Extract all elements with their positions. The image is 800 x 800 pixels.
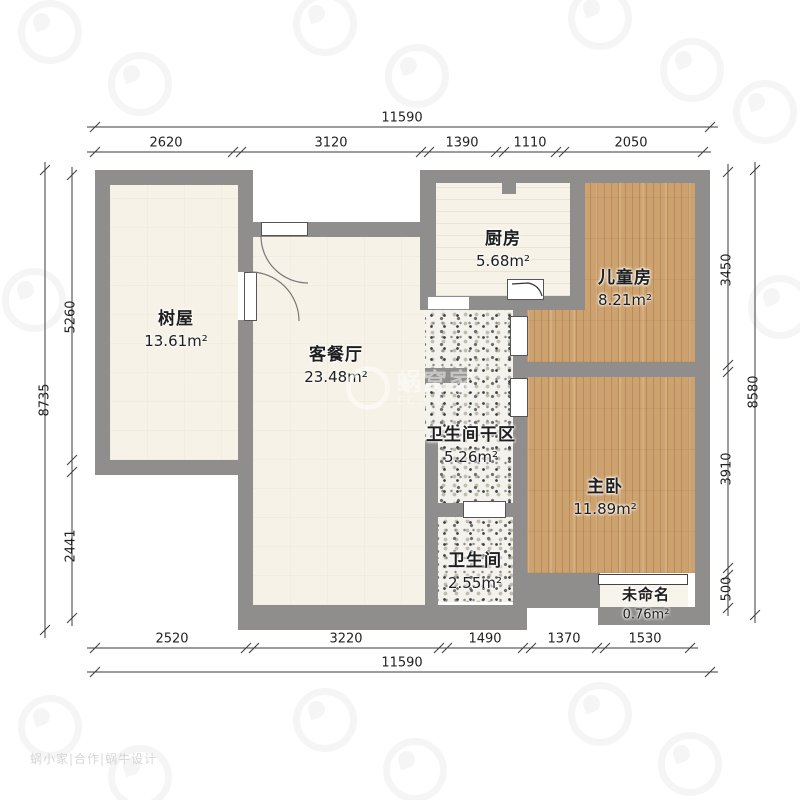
floor-plan: 树屋 13.61m² 客餐厅 23.48m² 厨房 5.68m² 儿童房 8.2… <box>0 0 800 800</box>
sliding-door-glyph <box>512 283 542 296</box>
dim-top-seg: 2620 <box>149 136 182 151</box>
dim-right-seg: 3910 <box>720 452 735 485</box>
room-name: 卫生间干区 <box>426 420 516 445</box>
dim-left-seg: 5260 <box>64 300 79 333</box>
dim-right-total: 8580 <box>747 375 762 408</box>
dim-top-seg: 1390 <box>445 136 478 151</box>
room-area: 5.68m² <box>476 252 530 270</box>
watermark-brand: 蜗窝家 EC.CO <box>346 366 475 410</box>
dim-bottom-total: 11590 <box>381 656 422 671</box>
room-label-unnamed: 未命名 0.76m² <box>622 584 670 623</box>
room-label-kidsroom: 儿童房 8.21m² <box>598 263 652 309</box>
dim-bottom-seg: 2520 <box>155 632 188 647</box>
room-name: 厨房 <box>485 224 521 249</box>
room-name: 卫生间 <box>448 546 502 571</box>
room-label-master: 主卧 11.89m² <box>573 472 637 518</box>
dim-right-seg: 3450 <box>720 253 735 286</box>
watermark-brand-text: 蜗窝家 <box>397 370 475 395</box>
room-area: 13.61m² <box>144 332 208 350</box>
room-name: 主卧 <box>587 472 623 497</box>
dim-top-seg: 2050 <box>614 136 647 151</box>
door-arcs <box>250 236 308 321</box>
dim-bottom-seg: 3220 <box>329 632 362 647</box>
room-name: 儿童房 <box>598 263 652 288</box>
room-label-treehouse: 树屋 13.61m² <box>144 304 208 350</box>
dim-top-seg: 1110 <box>513 136 546 151</box>
dim-top-total: 11590 <box>381 111 422 126</box>
watermark-ring-icon <box>346 366 390 410</box>
room-area: 2.55m² <box>448 574 502 592</box>
room-name: 未命名 <box>622 584 670 605</box>
dim-right-seg: 500 <box>720 577 735 602</box>
watermark-footer-text: 蜗小家|合作|蜗牛设计 <box>30 750 157 767</box>
room-name: 树屋 <box>158 304 194 329</box>
room-area: 11.89m² <box>573 500 637 518</box>
room-area: 0.76m² <box>623 608 670 623</box>
dim-bottom-seg: 1490 <box>468 632 501 647</box>
watermark-sub-text: EC.CO <box>397 395 475 407</box>
dim-left-seg: 2441 <box>64 529 79 562</box>
dim-left-total: 8735 <box>38 383 53 416</box>
room-area: 8.21m² <box>598 291 652 309</box>
dim-bottom-seg: 1530 <box>628 632 661 647</box>
dim-top-seg: 3120 <box>314 136 347 151</box>
room-name: 客餐厅 <box>309 340 363 365</box>
dim-bottom-seg: 1370 <box>547 632 580 647</box>
room-area: 5.26m² <box>444 448 498 466</box>
room-label-bathroom: 卫生间 2.55m² <box>448 546 502 592</box>
room-label-dryarea: 卫生间干区 5.26m² <box>426 420 516 466</box>
room-label-kitchen: 厨房 5.68m² <box>476 224 530 270</box>
